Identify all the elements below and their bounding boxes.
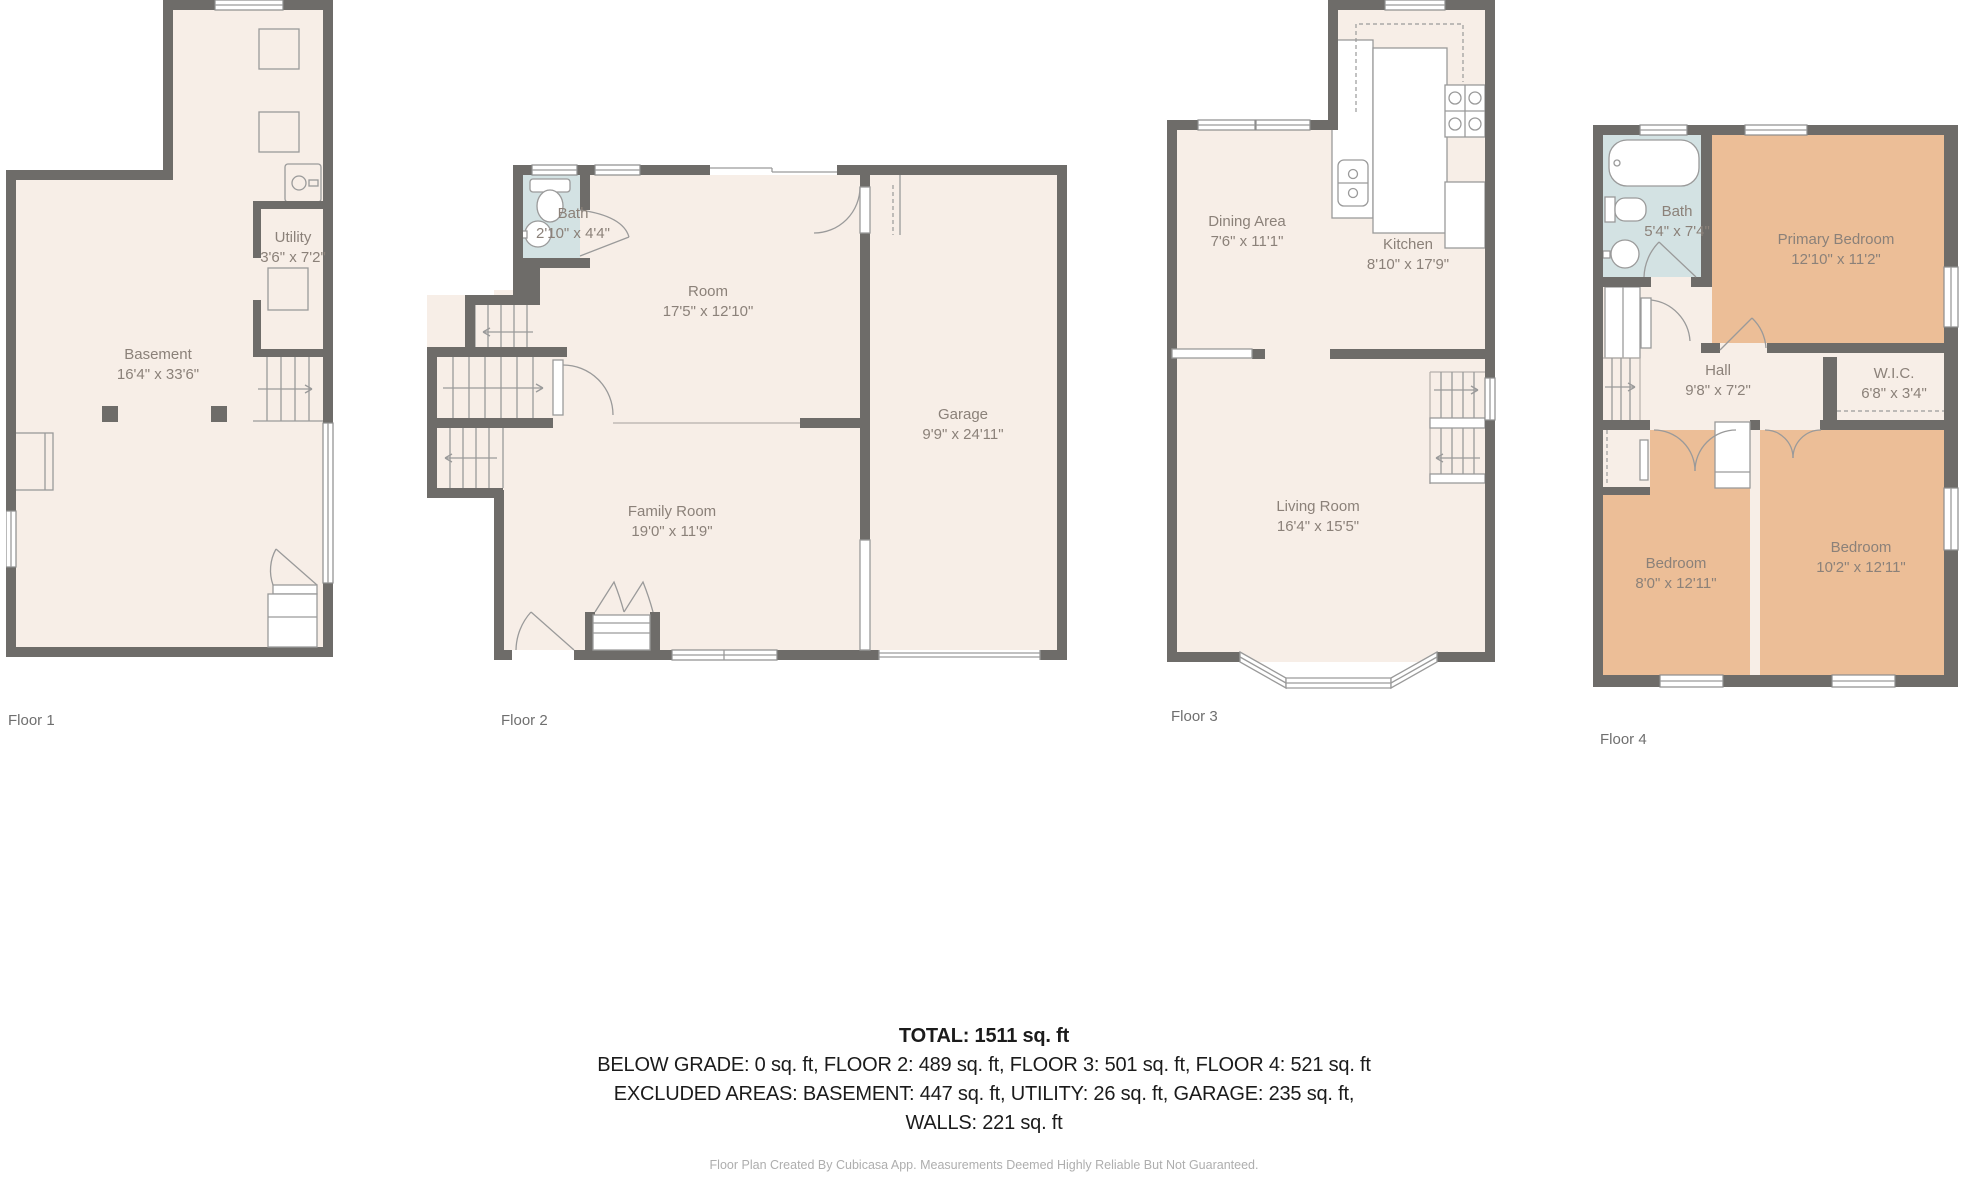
room-dims: 5'4" x 7'4" [1644, 222, 1710, 242]
room-name: Hall [1685, 361, 1751, 381]
room-name: Basement [117, 345, 199, 365]
floorplan-page: Basement 16'4" x 33'6" Utility 3'6" x 7'… [0, 0, 1968, 1178]
room-dims: 8'10" x 17'9" [1367, 255, 1449, 275]
room-dims: 9'9" x 24'11" [922, 425, 1003, 445]
room-dims: 8'0" x 12'11" [1635, 574, 1716, 594]
room-dims: 9'8" x 7'2" [1685, 381, 1751, 401]
room-name: W.I.C. [1861, 364, 1927, 384]
room-dims: 7'6" x 11'1" [1208, 232, 1286, 252]
room-name: Bedroom [1635, 554, 1716, 574]
floor-3-drawing [1160, 0, 1505, 700]
room-name: Bath [536, 204, 610, 224]
room-dims: 12'10" x 11'2" [1778, 250, 1895, 270]
walls-area: WALLS: 221 sq. ft [0, 1109, 1968, 1138]
room-name: Bath [1644, 202, 1710, 222]
floor-areas: BELOW GRADE: 0 sq. ft, FLOOR 2: 489 sq. … [0, 1051, 1968, 1080]
room-dims: 16'4" x 15'5" [1276, 517, 1359, 537]
floor-2-plan: Bath 2'10" x 4'4" Room 17'5" x 12'10" Fa… [427, 160, 1072, 665]
room-name: Utility [260, 228, 326, 248]
room-label-bedroom-right: Bedroom 10'2" x 12'11" [1816, 538, 1906, 578]
floor-2-caption: Floor 2 [501, 712, 548, 729]
room-dims: 6'8" x 3'4" [1861, 384, 1927, 404]
disclaimer: Floor Plan Created By Cubicasa App. Meas… [0, 1158, 1968, 1172]
room-name: Kitchen [1367, 235, 1449, 255]
floor-4-plan: Bath 5'4" x 7'4" Primary Bedroom 12'10" … [1593, 120, 1968, 750]
room-label-bath: Bath 2'10" x 4'4" [536, 204, 610, 244]
room-dims: 3'6" x 7'2" [260, 248, 326, 268]
room-name: Living Room [1276, 497, 1359, 517]
floor-3-caption: Floor 3 [1171, 708, 1218, 725]
room-label-bath: Bath 5'4" x 7'4" [1644, 202, 1710, 242]
cabinet [15, 433, 53, 490]
room-name: Room [663, 282, 754, 302]
room-label-utility: Utility 3'6" x 7'2" [260, 228, 326, 268]
floor-4-caption: Floor 4 [1600, 731, 1647, 748]
room-label-bedroom-left: Bedroom 8'0" x 12'11" [1635, 554, 1716, 594]
room-name: Primary Bedroom [1778, 230, 1895, 250]
room-label-living-room: Living Room 16'4" x 15'5" [1276, 497, 1359, 537]
room-label-garage: Garage 9'9" x 24'11" [922, 405, 1003, 445]
room-name: Family Room [628, 502, 716, 522]
room-label-basement: Basement 16'4" x 33'6" [117, 345, 199, 385]
room-name: Bedroom [1816, 538, 1906, 558]
room-dims: 19'0" x 11'9" [628, 522, 716, 542]
total-area: TOTAL: 1511 sq. ft [0, 1022, 1968, 1051]
half-wall [1172, 349, 1252, 358]
room-label-kitchen: Kitchen 8'10" x 17'9" [1367, 235, 1449, 275]
room-dims: 16'4" x 33'6" [117, 365, 199, 385]
floor-1-plan: Basement 16'4" x 33'6" Utility 3'6" x 7'… [6, 0, 336, 665]
floor-1-caption: Floor 1 [8, 712, 55, 729]
floor-3-plan: Dining Area 7'6" x 11'1" Kitchen 8'10" x… [1160, 0, 1505, 700]
room-label-dining-area: Dining Area 7'6" x 11'1" [1208, 212, 1286, 252]
area-summary: TOTAL: 1511 sq. ft BELOW GRADE: 0 sq. ft… [0, 1022, 1968, 1138]
room-dims: 17'5" x 12'10" [663, 302, 754, 322]
room-name: Dining Area [1208, 212, 1286, 232]
room-label-wic: W.I.C. 6'8" x 3'4" [1861, 364, 1927, 404]
room-label-primary-bedroom: Primary Bedroom 12'10" x 11'2" [1778, 230, 1895, 270]
floor-1-drawing [6, 0, 336, 665]
room-label-family-room: Family Room 19'0" x 11'9" [628, 502, 716, 542]
room-dims: 10'2" x 12'11" [1816, 558, 1906, 578]
room-label-hall: Hall 9'8" x 7'2" [1685, 361, 1751, 401]
room-label-room: Room 17'5" x 12'10" [663, 282, 754, 322]
room-name: Garage [922, 405, 1003, 425]
excluded-areas: EXCLUDED AREAS: BASEMENT: 447 sq. ft, UT… [0, 1080, 1968, 1109]
room-dims: 2'10" x 4'4" [536, 224, 610, 244]
